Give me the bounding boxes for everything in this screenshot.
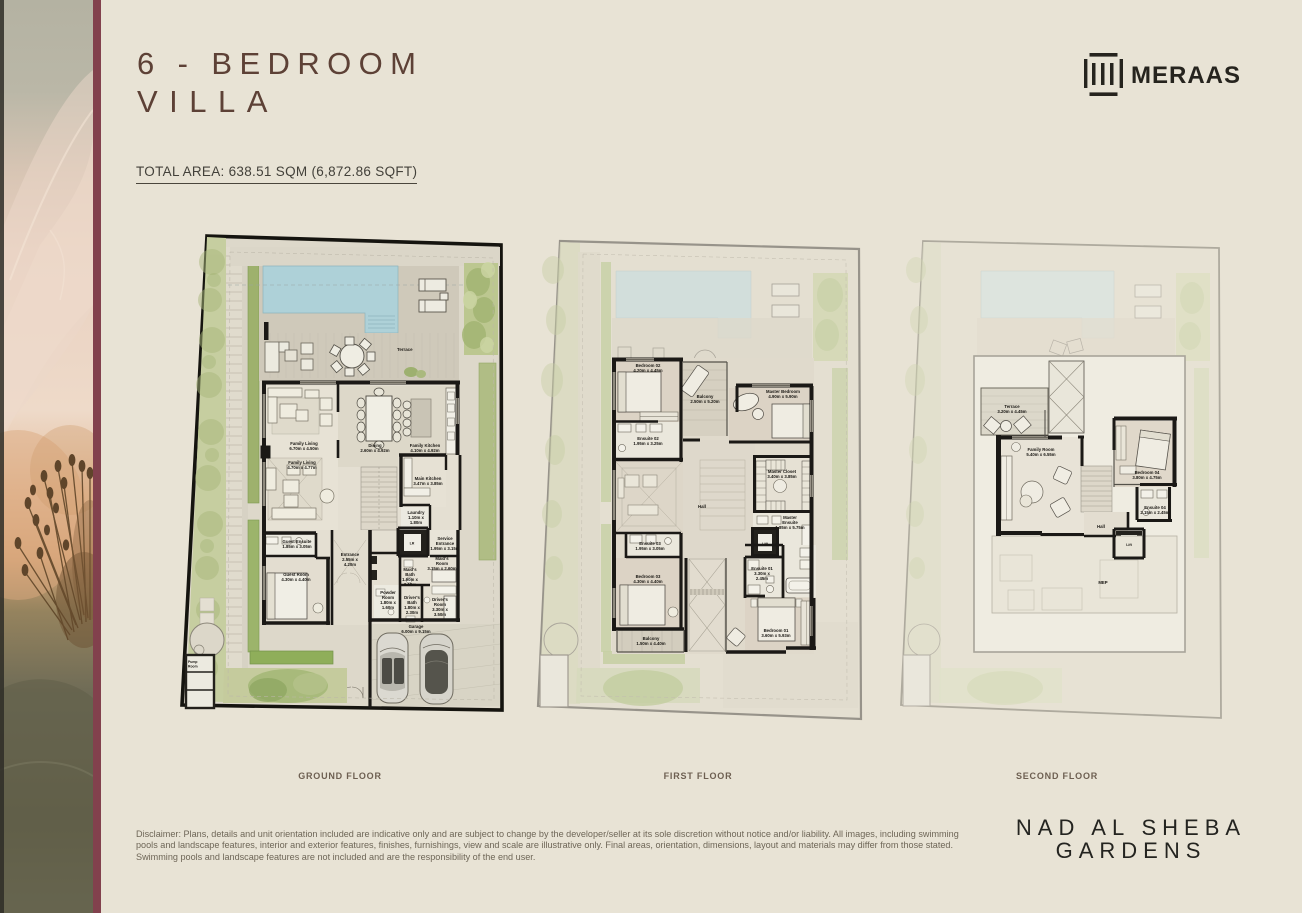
- svg-text:4.10m x 4.92m: 4.10m x 4.92m: [410, 448, 439, 453]
- svg-text:6.00m x 9.15m: 6.00m x 9.15m: [401, 629, 430, 634]
- svg-text:Lift: Lift: [762, 542, 768, 546]
- svg-text:2.50m x 5.20m: 2.50m x 5.20m: [690, 399, 719, 404]
- svg-text:6.70m x 4.50m: 6.70m x 4.50m: [289, 446, 318, 451]
- svg-text:3.60m x 5.93m: 3.60m x 5.93m: [761, 633, 790, 638]
- svg-text:Hall: Hall: [1097, 524, 1105, 529]
- svg-text:1.50m x 4.40m: 1.50m x 4.40m: [636, 641, 665, 646]
- svg-text:2.30m: 2.30m: [406, 610, 418, 615]
- svg-text:Lift: Lift: [1126, 543, 1132, 547]
- svg-text:3.40m x 3.85m: 3.40m x 3.85m: [767, 474, 796, 479]
- svg-text:Hall: Hall: [698, 504, 706, 509]
- svg-text:4.20m x 4.45m: 4.20m x 4.45m: [633, 368, 662, 373]
- svg-text:1.85m x 3.05m: 1.85m x 3.05m: [282, 544, 311, 549]
- svg-text:2.60m x 4.92m: 2.60m x 4.92m: [360, 448, 389, 453]
- svg-text:1.95m x 3.25m: 1.95m x 3.25m: [633, 441, 662, 446]
- svg-text:MERAAS: MERAAS: [1131, 62, 1241, 89]
- svg-text:3.20m x 4.45m: 3.20m x 4.45m: [997, 409, 1026, 414]
- svg-text:3.80m x 4.75m: 3.80m x 4.75m: [1132, 475, 1161, 480]
- svg-text:4.20m: 4.20m: [344, 562, 356, 567]
- svg-text:1.60m: 1.60m: [382, 605, 394, 610]
- svg-text:3.15m x 2.60m: 3.15m x 2.60m: [427, 566, 456, 571]
- svg-text:MEP: MEP: [1098, 580, 1107, 585]
- svg-text:3.50m: 3.50m: [434, 612, 446, 617]
- svg-text:3.47m x 3.85m: 3.47m x 3.85m: [413, 481, 442, 486]
- svg-text:5.40m x 6.55m: 5.40m x 6.55m: [1026, 452, 1055, 457]
- svg-text:1.95m x 3.05m: 1.95m x 3.05m: [635, 546, 664, 551]
- svg-text:4.90m x 5.90m: 4.90m x 5.90m: [768, 394, 797, 399]
- svg-text:2.45m: 2.45m: [756, 576, 768, 581]
- svg-text:LR: LR: [410, 542, 415, 546]
- svg-text:4.70m x 4.77m: 4.70m x 4.77m: [287, 465, 316, 470]
- svg-text:1.85m x 5.75m: 1.85m x 5.75m: [775, 525, 804, 530]
- svg-text:2.15m: 2.15m: [404, 582, 416, 587]
- svg-text:Pump: Pump: [188, 660, 197, 664]
- svg-text:1.80m: 1.80m: [410, 520, 422, 525]
- svg-text:Room: Room: [188, 665, 198, 669]
- svg-text:1.95m x 3.15m: 1.95m x 3.15m: [430, 546, 459, 551]
- svg-text:4.30m x 4.40m: 4.30m x 4.40m: [281, 577, 310, 582]
- svg-text:4.30m x 4.40m: 4.30m x 4.40m: [633, 579, 662, 584]
- svg-text:Terrace: Terrace: [397, 347, 413, 352]
- svg-text:2.15m x 2.45m: 2.15m x 2.45m: [1140, 510, 1169, 515]
